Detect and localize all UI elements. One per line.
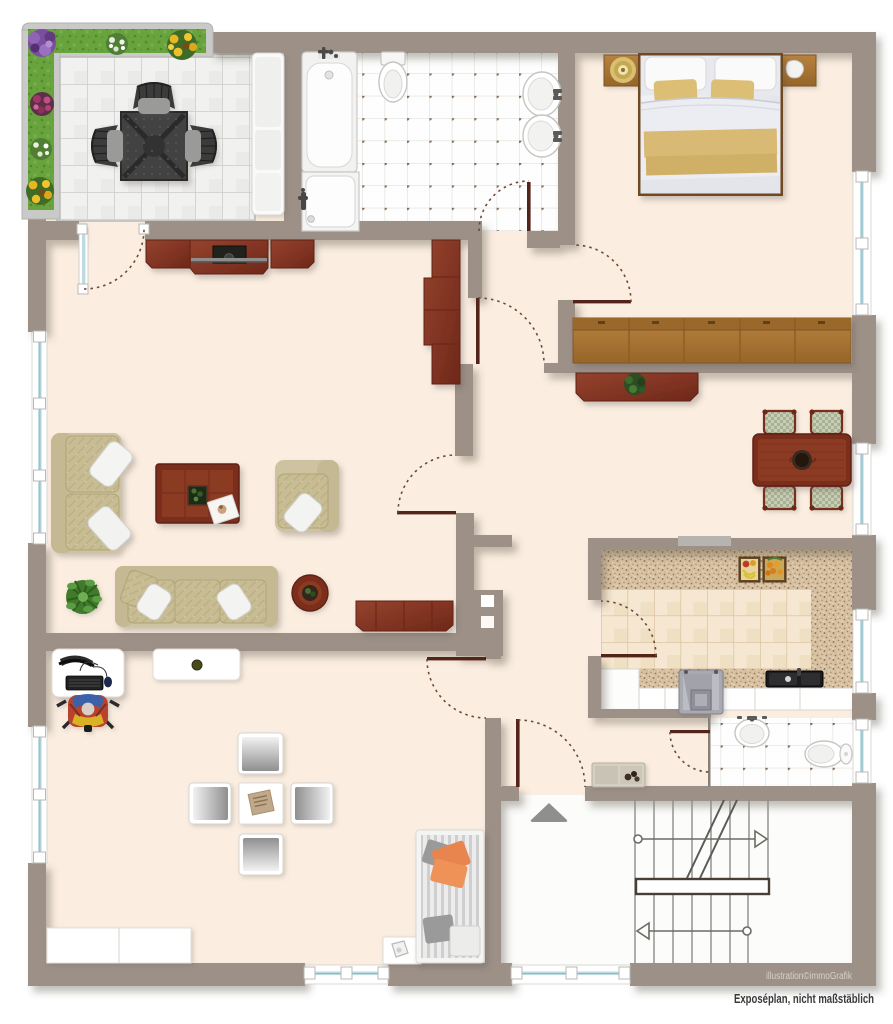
svg-text:illustration©immoGrafik: illustration©immoGrafik — [766, 971, 853, 982]
svg-text:Exposéplan, nicht maßstäblich: Exposéplan, nicht maßstäblich — [734, 992, 874, 1006]
